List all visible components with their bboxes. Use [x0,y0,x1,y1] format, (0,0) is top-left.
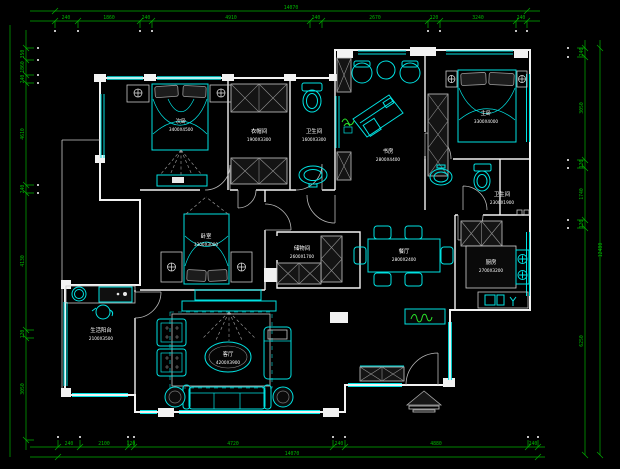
dim-right-total: 12480 [598,243,604,258]
lamp-icon [238,263,246,271]
sink-icon [299,166,327,187]
room-label: 餐厅 [399,247,410,255]
door-entry [406,353,438,385]
dresser [157,175,207,186]
kitchen-island [466,246,516,288]
room-size: 2700X3200 [479,268,504,273]
dim-label: 1860 [20,61,26,73]
room-label: 主卧 [481,109,492,117]
walls [62,50,530,412]
room-size: 3300X4000 [474,119,499,124]
room-label: 客厅 [223,350,234,358]
dim-label: 3050 [579,102,585,114]
door-bedroom-north [205,165,230,190]
lounge-chairs-icon [352,61,420,83]
room-kitchen: 厨房 2700X3200 [461,210,529,308]
room-size: 2800X4400 [376,157,401,162]
entry-corridor [360,309,445,412]
room-size: 2100X3500 [89,336,114,341]
dim-label: 240 [529,441,538,447]
ceiling-dash [160,150,202,175]
dim-label: 240 [335,441,344,447]
dim-label: 4880 [430,441,442,447]
dimension-chain-top: 14070 240 1860 240 4910 240 2670 120 324… [30,5,540,32]
bed-icon [152,84,208,150]
dim-label: 240 [517,15,526,21]
sofa-icon [183,385,271,409]
room-label: 厨房 [486,258,497,266]
door-bath-guest [463,186,487,210]
bed-icon [184,214,229,284]
room-size: 2600X1700 [290,254,315,259]
round-table-icon [377,61,395,79]
bed-icon [458,70,516,142]
room-study: 书房 2800X4400 [337,58,420,180]
room-label: 储物间 [294,244,310,252]
room-cloakroom: 衣帽间 1900X3300 [231,84,287,184]
room-dining: 餐厅 2800X2400 [354,226,453,286]
dim-label: 240 [20,75,26,84]
dim-label: 1740 [579,188,585,200]
tv-console [182,301,276,311]
side-table-icon [273,387,293,407]
room-label: 卫生间 [306,127,322,135]
dim-label: 240 [20,185,26,194]
room-bath-main: 卫生间 1600X3300 [299,83,327,187]
storage-cabinet [277,236,342,284]
dim-bottom-total: 14070 [285,451,300,457]
room-living: 客厅 4200X3900 [157,312,293,409]
room-size: 3400X4500 [169,127,194,132]
dim-label: 4910 [225,15,237,21]
dim-label: 4130 [20,255,26,267]
lamp-icon [168,263,176,271]
dim-label: 6250 [579,335,585,347]
kettle-icon [92,305,113,319]
round-sink-icon [72,287,86,301]
side-table-icon [165,387,185,407]
kitchen-cabinet [461,221,502,246]
lamp-icon [217,89,225,97]
door-bedroom-center [265,204,291,230]
tv-projection-dash [203,312,255,341]
room-label: 书房 [383,147,394,155]
dim-label: 240 [62,15,71,21]
dim-label: 3240 [472,15,484,21]
dim-label: 1860 [103,15,115,21]
room-size: 1600X3300 [302,137,327,142]
room-label: 卫生间 [494,190,510,198]
room-label: 次卧 [176,117,187,125]
dim-label: 120 [579,160,585,169]
dim-label: 2670 [369,15,381,21]
dining-chairs-icon [354,226,453,286]
shoe-cabinet [360,366,404,381]
dimension-chain-right: 240 3050 120 1740 120 6250 12480 [567,40,604,458]
room-laundry-balcony: 生活阳台 2100X3500 [66,286,135,341]
chaise-icon [264,327,291,379]
toilet-icon [474,164,491,191]
dim-label: 4720 [227,441,239,447]
cad-floorplan-canvas: 14070 240 1860 240 4910 240 2670 120 324… [0,0,620,469]
lamp-icon [519,76,526,83]
dimension-chain-bottom: 14070 240 2100 120 4720 240 4880 240 [30,436,545,460]
tv-cabinet [195,290,261,300]
door-cloakroom [238,190,256,208]
dining-table-icon [368,239,440,272]
dim-label: 120 [20,330,26,339]
dim-label: 240 [579,48,585,57]
toilet-icon [302,83,322,112]
desk-icon [353,95,403,137]
armchair-icon [157,349,186,376]
room-size: 2300X1900 [490,200,515,205]
dim-label: 120 [430,15,439,21]
door-laundry [135,292,161,318]
room-size: 4200X3900 [216,360,241,365]
dim-label: 2100 [98,441,110,447]
washer-icon [99,287,132,302]
room-label: 衣帽间 [251,127,267,135]
dim-label: 240 [142,15,151,21]
ceiling-dash [186,197,228,214]
room-storage: 储物间 2600X1700 [277,236,342,284]
room-size: 2800X2400 [392,257,417,262]
wardrobe-cabinet [428,94,448,176]
stove-icon [516,250,529,284]
dim-label: 4610 [20,128,26,140]
dim-label: 120 [127,441,136,447]
room-master-bedroom: 主卧 3300X4000 [428,70,527,176]
room-bedroom-north: 次卧 3400X4500 [127,84,232,186]
lamp-icon [134,89,142,97]
dim-label: 350 [20,50,26,59]
room-label: 生活阳台 [90,326,112,334]
dim-label: 240 [65,441,74,447]
dim-label: 120 [579,220,585,229]
plant-shelf [405,309,445,324]
armchair-icon [157,319,186,346]
dim-label: 3050 [20,383,26,395]
room-size: 3300X3000 [194,242,219,247]
dimension-chain-left: 350 1860 240 4610 240 4130 120 3050 [10,25,39,457]
door-hall [307,195,335,223]
plant-icon [342,119,354,133]
dim-label: 240 [312,15,321,21]
floorplan-drawing: 14070 240 1860 240 4910 240 2670 120 324… [0,0,620,469]
room-label: 卧室 [201,232,212,240]
entry-marker [407,391,441,412]
dim-top-total: 14070 [284,5,299,11]
lamp-icon [448,76,455,83]
kitchen-sink-counter [478,292,528,308]
room-size: 1900X3300 [247,137,272,142]
